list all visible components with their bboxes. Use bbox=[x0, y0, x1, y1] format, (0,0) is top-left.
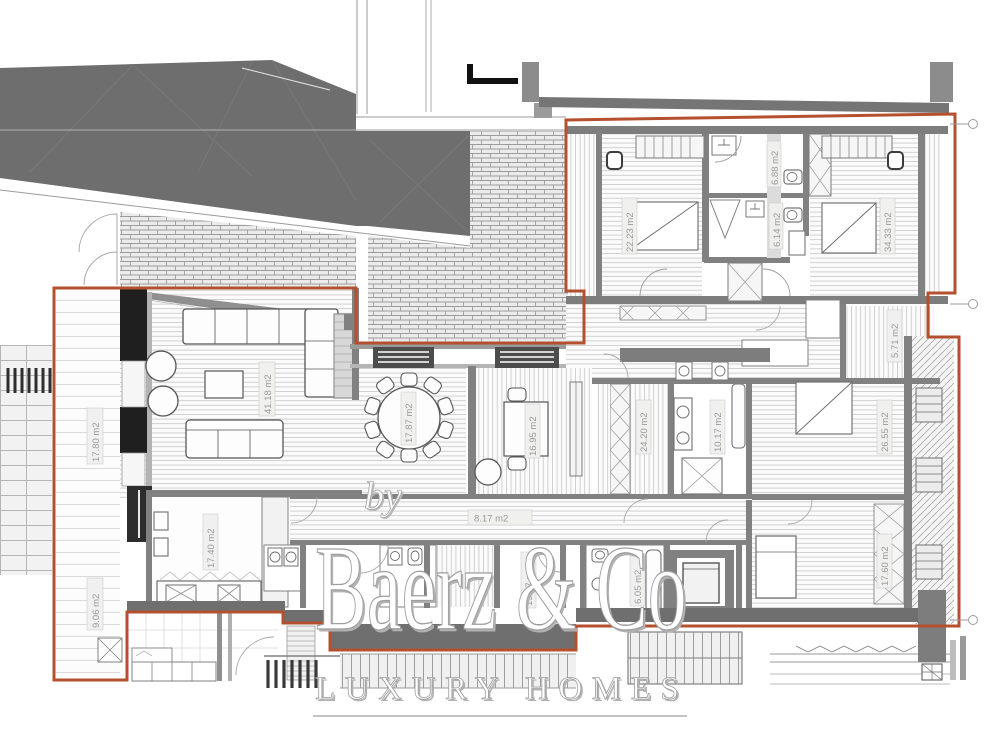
svg-text:LUXURY HOMES: LUXURY HOMES bbox=[315, 671, 688, 707]
svg-text:17.60 m2: 17.60 m2 bbox=[880, 546, 891, 586]
svg-text:5.71 m2: 5.71 m2 bbox=[890, 324, 901, 358]
svg-text:26.55 m2: 26.55 m2 bbox=[880, 412, 891, 452]
svg-text:by: by bbox=[364, 473, 402, 518]
svg-text:17.80 m2: 17.80 m2 bbox=[91, 422, 102, 462]
svg-text:24.20 m2: 24.20 m2 bbox=[639, 412, 650, 452]
svg-text:9.06 m2: 9.06 m2 bbox=[91, 594, 102, 628]
svg-text:17.87 m2: 17.87 m2 bbox=[404, 403, 415, 443]
svg-text:17.40 m2: 17.40 m2 bbox=[206, 528, 217, 568]
svg-text:22.23 m2: 22.23 m2 bbox=[625, 212, 636, 252]
svg-text:16.95 m2: 16.95 m2 bbox=[528, 416, 539, 456]
svg-text:34.33 m2: 34.33 m2 bbox=[883, 212, 894, 252]
svg-text:41.18 m2: 41.18 m2 bbox=[263, 374, 274, 414]
svg-text:6.88 m2: 6.88 m2 bbox=[770, 151, 781, 185]
svg-text:6.14 m2: 6.14 m2 bbox=[772, 213, 783, 247]
svg-text:10.17 m2: 10.17 m2 bbox=[713, 412, 724, 452]
svg-text:Baerz & Co: Baerz & Co bbox=[315, 522, 687, 657]
